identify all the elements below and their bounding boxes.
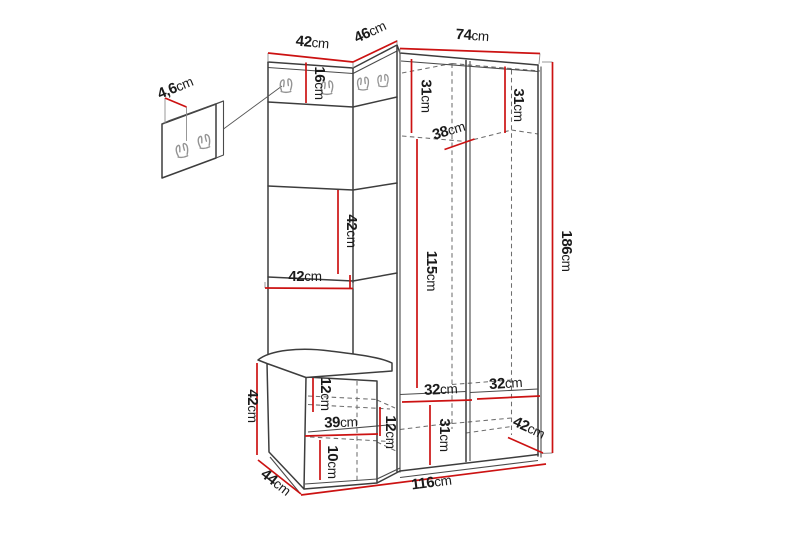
dim-label: 74cm [455, 26, 489, 45]
dim-label: 42cm [288, 268, 321, 285]
dim-label: 186cm [558, 230, 575, 271]
diagram-drawing: 42cm 46cm 74cm 16cm 4,6cm 31cm 31cm [0, 0, 800, 533]
dim-label: 12cm [317, 377, 334, 410]
coat-hook-icon [280, 79, 291, 92]
coat-hook-icon [197, 134, 210, 149]
dim-label: 42cm [343, 214, 360, 247]
dim-bench-inner-width: 39cm [305, 413, 378, 436]
dim-label: 44cm [257, 466, 294, 500]
dim-upper-left-compartment-height: 31cm [412, 59, 435, 133]
dim-label: 38cm [430, 118, 467, 144]
dim-label: 46cm [351, 17, 388, 46]
dim-label: 42cm [244, 389, 261, 422]
dim-label: 39cm [324, 413, 358, 431]
dim-mirror-width: 42cm [265, 268, 353, 289]
dim-label: 31cm [510, 88, 527, 121]
coat-hook-icon [378, 75, 388, 87]
dim-label: 115cm [423, 251, 440, 291]
dim-label: 10cm [324, 445, 341, 478]
dim-lower-right-compartment-width: 32cm [477, 374, 540, 399]
dim-bench-bottom-inset: 10cm [320, 440, 341, 480]
dim-top-left-width: 42cm [268, 33, 353, 62]
coat-hooks [175, 75, 388, 159]
dim-label: 32cm [424, 380, 458, 399]
coat-hook-icon [175, 143, 188, 158]
furniture-dimension-diagram: 42cm 46cm 74cm 16cm 4,6cm 31cm 31cm [0, 0, 800, 533]
dim-label: 4,6cm [155, 73, 196, 103]
dim-label: 31cm [436, 418, 453, 451]
dim-hook-strip-height: 16cm [306, 63, 328, 104]
dim-upper-right-compartment-height: 31cm [505, 67, 527, 134]
dim-label: 42cm [510, 413, 547, 442]
dim-label: 116cm [410, 472, 452, 494]
dim-bench-right-inset: 12cm [380, 407, 399, 449]
dim-top-corner-width: 46cm [351, 17, 397, 62]
dim-lower-compartment-height: 31cm [430, 405, 453, 465]
dim-wardrobe-depth: 42cm [508, 413, 548, 453]
dim-wall-panel-thickness: 4,6cm [155, 73, 196, 107]
dim-total-height: 186cm [553, 62, 576, 453]
dim-mirror-height: 42cm [338, 190, 360, 274]
dim-bench-height: 42cm [244, 363, 261, 455]
dim-label: 16cm [311, 66, 328, 99]
dim-top-right-width: 74cm [400, 26, 540, 54]
dim-label: 42cm [295, 33, 330, 53]
dim-bench-top-inset: 12cm [313, 377, 334, 412]
dim-hanging-space-height: 115cm [417, 139, 440, 388]
coat-hook-icon [358, 77, 369, 90]
dim-label: 12cm [382, 415, 399, 448]
dim-label: 31cm [418, 79, 435, 112]
